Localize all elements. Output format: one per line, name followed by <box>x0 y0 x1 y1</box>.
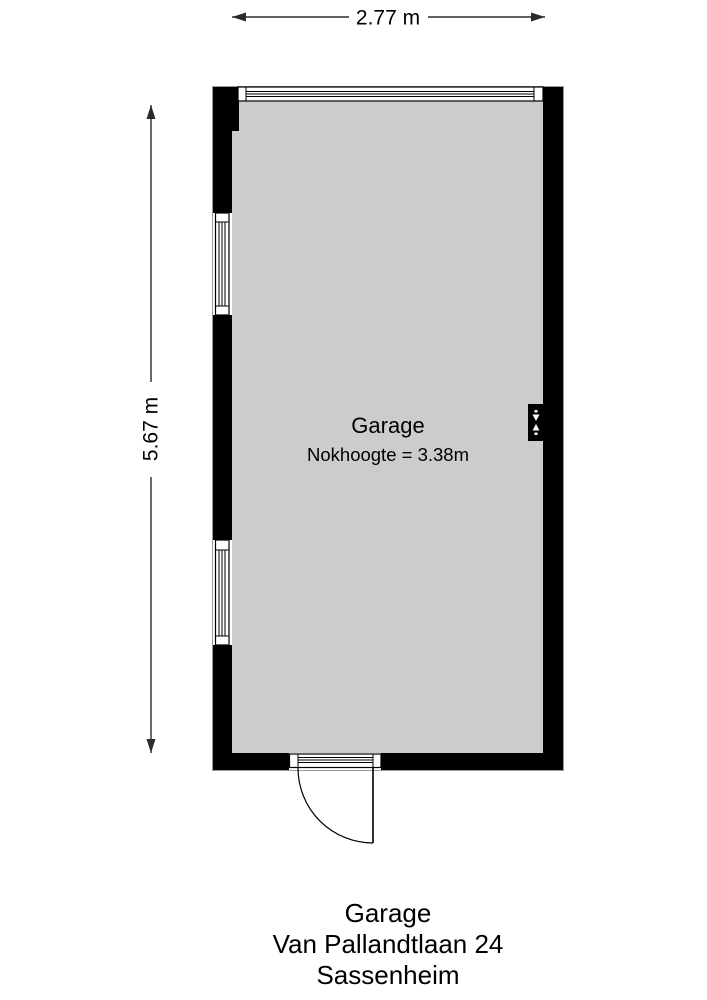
dimension-height: 5.67 m <box>140 105 163 753</box>
caption-title: Garage <box>345 898 432 928</box>
window-top <box>238 87 543 101</box>
dimension-width-label: 2.77 m <box>356 7 420 30</box>
vent-box <box>528 404 544 441</box>
window-left-lower <box>216 540 230 645</box>
door-swing-arc <box>298 768 373 843</box>
floorplan-page: 2.77 m 5.67 m Garage Nokhoogte = 3.38m G… <box>0 0 707 1000</box>
entrance-door <box>290 754 382 843</box>
arrow-right-icon <box>531 13 545 22</box>
wall-bottom-right <box>381 753 563 770</box>
caption-address: Van Pallandtlaan 24 <box>273 929 504 959</box>
arrow-down-icon <box>147 739 156 753</box>
floor-plan: 2.77 m 5.67 m Garage Nokhoogte = 3.38m G… <box>0 0 707 1000</box>
wall-vent-box <box>528 404 544 441</box>
wall-left-middle <box>213 315 232 540</box>
arrow-left-icon <box>232 13 246 22</box>
window-left-upper <box>216 213 230 315</box>
caption: Garage Van Pallandtlaan 24 Sassenheim <box>273 898 504 990</box>
arrow-up-icon <box>147 105 156 119</box>
room-name-label: Garage <box>351 413 424 438</box>
wall-bottom-left <box>213 753 289 770</box>
wall-left-lower <box>213 645 232 770</box>
wall-right <box>543 87 563 770</box>
dimension-width: 2.77 m <box>232 7 545 30</box>
ridge-height-label: Nokhoogte = 3.38m <box>307 444 469 465</box>
door-panel <box>290 754 382 768</box>
caption-city: Sassenheim <box>316 960 459 990</box>
wall-left-upper <box>213 87 232 213</box>
dimension-height-label: 5.67 m <box>140 397 163 461</box>
